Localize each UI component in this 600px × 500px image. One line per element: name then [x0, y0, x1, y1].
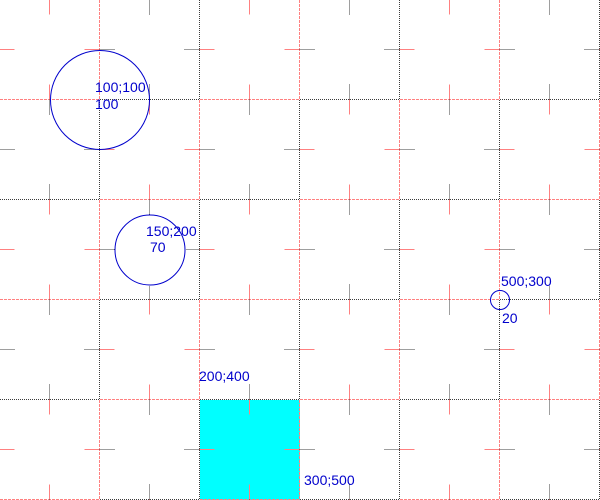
drawing-canvas[interactable]: 100;100100150;20070500;30020200;400300;5… — [0, 0, 600, 500]
circle-2[interactable] — [115, 215, 185, 285]
scene-svg — [0, 0, 600, 500]
